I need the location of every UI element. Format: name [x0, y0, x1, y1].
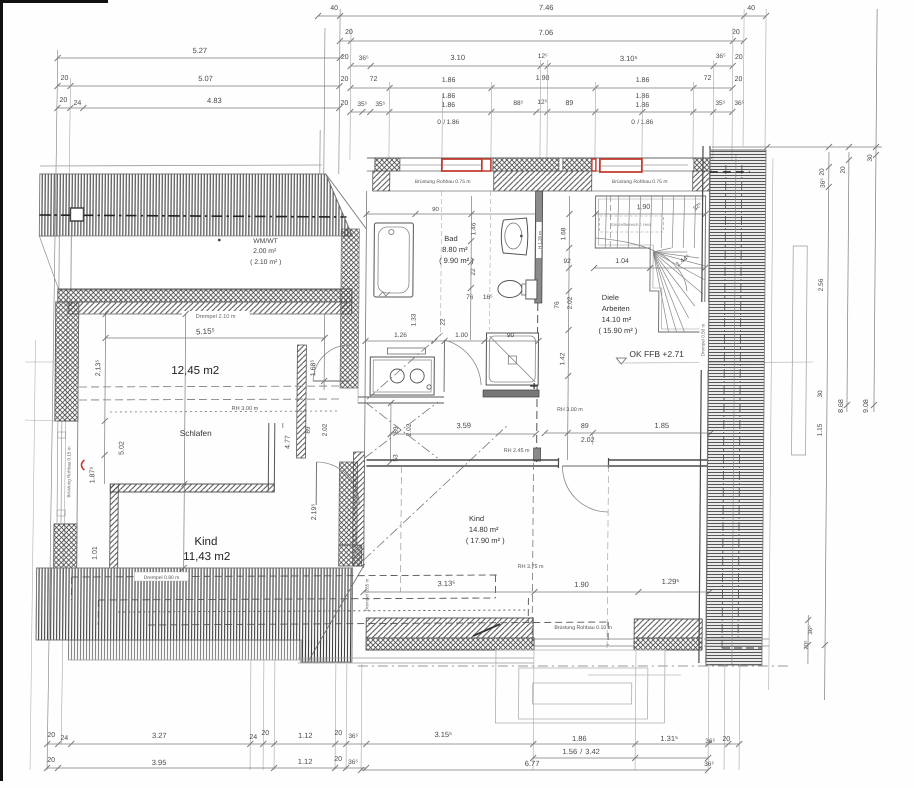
svg-text:90: 90: [432, 207, 439, 213]
svg-text:3.13⁵: 3.13⁵: [437, 579, 455, 589]
svg-text:5.15⁵: 5.15⁵: [196, 327, 215, 337]
svg-text:1.56 / 3.42: 1.56 / 3.42: [563, 747, 600, 756]
svg-text:88⁵: 88⁵: [513, 100, 523, 107]
svg-text:20: 20: [61, 75, 69, 82]
svg-text:20⁵: 20⁵: [803, 640, 810, 650]
svg-text:RH 3.00 m: RH 3.00 m: [557, 407, 583, 413]
svg-text:2.00 m²: 2.00 m²: [253, 248, 277, 255]
svg-text:1.87⁵: 1.87⁵: [89, 467, 96, 484]
svg-text:20: 20: [261, 730, 269, 737]
svg-text:20: 20: [722, 736, 730, 743]
svg-text:5.02: 5.02: [119, 441, 126, 455]
svg-text:14.10 m²: 14.10 m²: [602, 315, 632, 324]
svg-text:9.08: 9.08: [863, 399, 870, 413]
svg-text:2.19⁵: 2.19⁵: [311, 504, 318, 521]
svg-text:36⁵: 36⁵: [716, 53, 726, 60]
svg-text:35⁵: 35⁵: [375, 101, 385, 108]
svg-text:Drempel 2.10 m: Drempel 2.10 m: [196, 314, 236, 320]
svg-text:2.56: 2.56: [818, 278, 825, 291]
svg-text:12⁵: 12⁵: [537, 99, 547, 106]
svg-text:3.15⁵: 3.15⁵: [434, 730, 452, 739]
svg-text:24: 24: [73, 100, 81, 107]
svg-text:5.27: 5.27: [192, 46, 207, 55]
svg-text:Brüstung Rohbau 0.75 m: Brüstung Rohbau 0.75 m: [612, 179, 668, 185]
svg-text:2.02: 2.02: [567, 296, 574, 309]
svg-text:1.86: 1.86: [636, 77, 650, 84]
svg-text:22: 22: [440, 318, 447, 326]
svg-text:92: 92: [563, 258, 571, 265]
svg-text:1.15: 1.15: [817, 423, 824, 436]
svg-text:20: 20: [735, 54, 743, 61]
svg-text:24: 24: [60, 735, 68, 742]
svg-text:Kind: Kind: [469, 514, 484, 523]
svg-text:24: 24: [249, 734, 257, 741]
svg-text:3.27: 3.27: [152, 731, 167, 740]
svg-text:( 17.90 m² ): ( 17.90 m² ): [466, 536, 505, 545]
svg-text:8.68: 8.68: [838, 399, 845, 413]
svg-text:1.86: 1.86: [442, 77, 456, 84]
svg-text:Bad: Bad: [444, 234, 457, 243]
svg-text:36⁵: 36⁵: [704, 761, 714, 768]
svg-text:89: 89: [581, 423, 589, 430]
svg-text:Kind: Kind: [194, 536, 217, 548]
svg-text:1.68: 1.68: [560, 227, 567, 240]
svg-text:Drempel 0.80 m: Drempel 0.80 m: [144, 575, 180, 581]
svg-text:2.13⁵: 2.13⁵: [95, 360, 102, 377]
svg-text:4.77: 4.77: [285, 435, 292, 449]
svg-text:1.29⁵: 1.29⁵: [662, 577, 680, 586]
svg-text:89: 89: [565, 100, 573, 107]
svg-text:36⁵: 36⁵: [705, 738, 715, 745]
svg-text:3.59: 3.59: [456, 421, 471, 431]
svg-text:7.46: 7.46: [539, 3, 554, 12]
svg-text:( 2.10 m² ): ( 2.10 m² ): [250, 259, 281, 266]
svg-text:1.42: 1.42: [559, 352, 566, 365]
svg-text:89: 89: [305, 426, 312, 434]
svg-text:36⁵: 36⁵: [820, 178, 827, 188]
svg-text:Diele: Diele: [602, 293, 619, 302]
svg-text:30: 30: [817, 390, 824, 398]
svg-text:16⁵: 16⁵: [483, 294, 493, 301]
svg-text:20: 20: [735, 76, 743, 83]
svg-text:RH 3.75 m: RH 3.75 m: [518, 564, 544, 570]
svg-text:1.12: 1.12: [298, 731, 313, 740]
svg-text:1.68⁵: 1.68⁵: [310, 360, 317, 377]
svg-text:6.77: 6.77: [525, 759, 540, 768]
svg-text:20: 20: [341, 54, 349, 61]
svg-text:Brüstung Rohbau 0.10 m: Brüstung Rohbau 0.10 m: [554, 625, 612, 631]
svg-text:( 15.90 m² ): ( 15.90 m² ): [599, 326, 638, 335]
svg-text:Drempel 0.50 m: Drempel 0.50 m: [700, 323, 705, 356]
svg-text:1.31⁵: 1.31⁵: [660, 734, 678, 743]
svg-text:35⁵: 35⁵: [357, 101, 367, 108]
svg-text:2.02: 2.02: [322, 423, 329, 436]
svg-text:1.86: 1.86: [572, 734, 587, 743]
svg-text:1.33: 1.33: [411, 313, 418, 326]
svg-text:OK FFB +2.71: OK FFB +2.71: [629, 349, 684, 359]
svg-text:1.26: 1.26: [394, 332, 407, 339]
svg-text:1.12: 1.12: [298, 757, 313, 766]
svg-text:Arbeiten: Arbeiten: [602, 304, 630, 313]
svg-text:20: 20: [340, 100, 348, 107]
svg-text:H 1.20 m: H 1.20 m: [537, 231, 542, 249]
svg-text:7.06: 7.06: [539, 28, 554, 37]
svg-text:1.00: 1.00: [455, 332, 468, 339]
svg-text:1.04: 1.04: [615, 258, 629, 265]
svg-text:72: 72: [704, 75, 712, 82]
svg-text:35⁵: 35⁵: [715, 100, 725, 107]
svg-text:14.80 m²: 14.80 m²: [469, 525, 499, 534]
svg-text:RH 2.45 m: RH 2.45 m: [504, 448, 530, 454]
svg-text:1.86: 1.86: [442, 102, 456, 109]
svg-text:2.02: 2.02: [406, 423, 413, 436]
svg-text:36⁵: 36⁵: [348, 759, 358, 766]
svg-text:89: 89: [393, 426, 400, 434]
svg-text:36⁵: 36⁵: [359, 55, 369, 62]
svg-text:3.95: 3.95: [152, 758, 167, 767]
svg-text:5.07: 5.07: [198, 74, 213, 83]
svg-text:1.90: 1.90: [637, 204, 651, 211]
svg-text:0 / 1.86: 0 / 1.86: [437, 119, 459, 126]
svg-text:20: 20: [47, 732, 55, 739]
svg-text:20: 20: [334, 730, 342, 737]
svg-text:4.83: 4.83: [207, 96, 222, 105]
svg-text:3.10⁵: 3.10⁵: [620, 54, 638, 63]
svg-text:40: 40: [747, 5, 755, 12]
svg-text:90: 90: [507, 332, 515, 339]
svg-text:WM/WT: WM/WT: [253, 238, 278, 245]
svg-text:8.80 m²: 8.80 m²: [442, 245, 468, 254]
svg-text:20: 20: [840, 166, 847, 174]
svg-text:20: 20: [819, 168, 826, 176]
svg-text:72: 72: [370, 76, 378, 83]
svg-text:12⁵: 12⁵: [538, 53, 548, 60]
svg-text:76: 76: [554, 301, 561, 309]
svg-text:20: 20: [47, 757, 55, 764]
svg-text:36⁵: 36⁵: [348, 733, 358, 740]
svg-text:12,45 m2: 12,45 m2: [171, 365, 219, 377]
svg-text:1.85: 1.85: [654, 421, 669, 430]
svg-text:1.01: 1.01: [92, 546, 99, 560]
svg-text:Einstellbereich f. Heiz: Einstellbereich f. Heiz: [611, 222, 651, 227]
svg-text:20: 20: [59, 97, 67, 104]
svg-text:Brüstung Rohbau 0.75 m: Brüstung Rohbau 0.75 m: [415, 179, 471, 185]
svg-text:3.10: 3.10: [450, 53, 465, 62]
svg-text:20: 20: [345, 29, 353, 36]
svg-text:RH 3.00 m: RH 3.00 m: [232, 406, 259, 412]
svg-text:Drempel 0.85 m: Drempel 0.85 m: [364, 578, 369, 611]
svg-text:11,43 m2: 11,43 m2: [183, 551, 230, 563]
svg-text:Brüstung Rohbau 0.15 m: Brüstung Rohbau 0.15 m: [66, 446, 71, 497]
svg-text:20: 20: [334, 756, 342, 763]
svg-text:76: 76: [466, 294, 474, 301]
svg-text:40: 40: [330, 5, 338, 12]
svg-text:20: 20: [341, 76, 349, 83]
svg-text:1.86: 1.86: [442, 93, 456, 100]
svg-text:1.90: 1.90: [574, 580, 589, 589]
